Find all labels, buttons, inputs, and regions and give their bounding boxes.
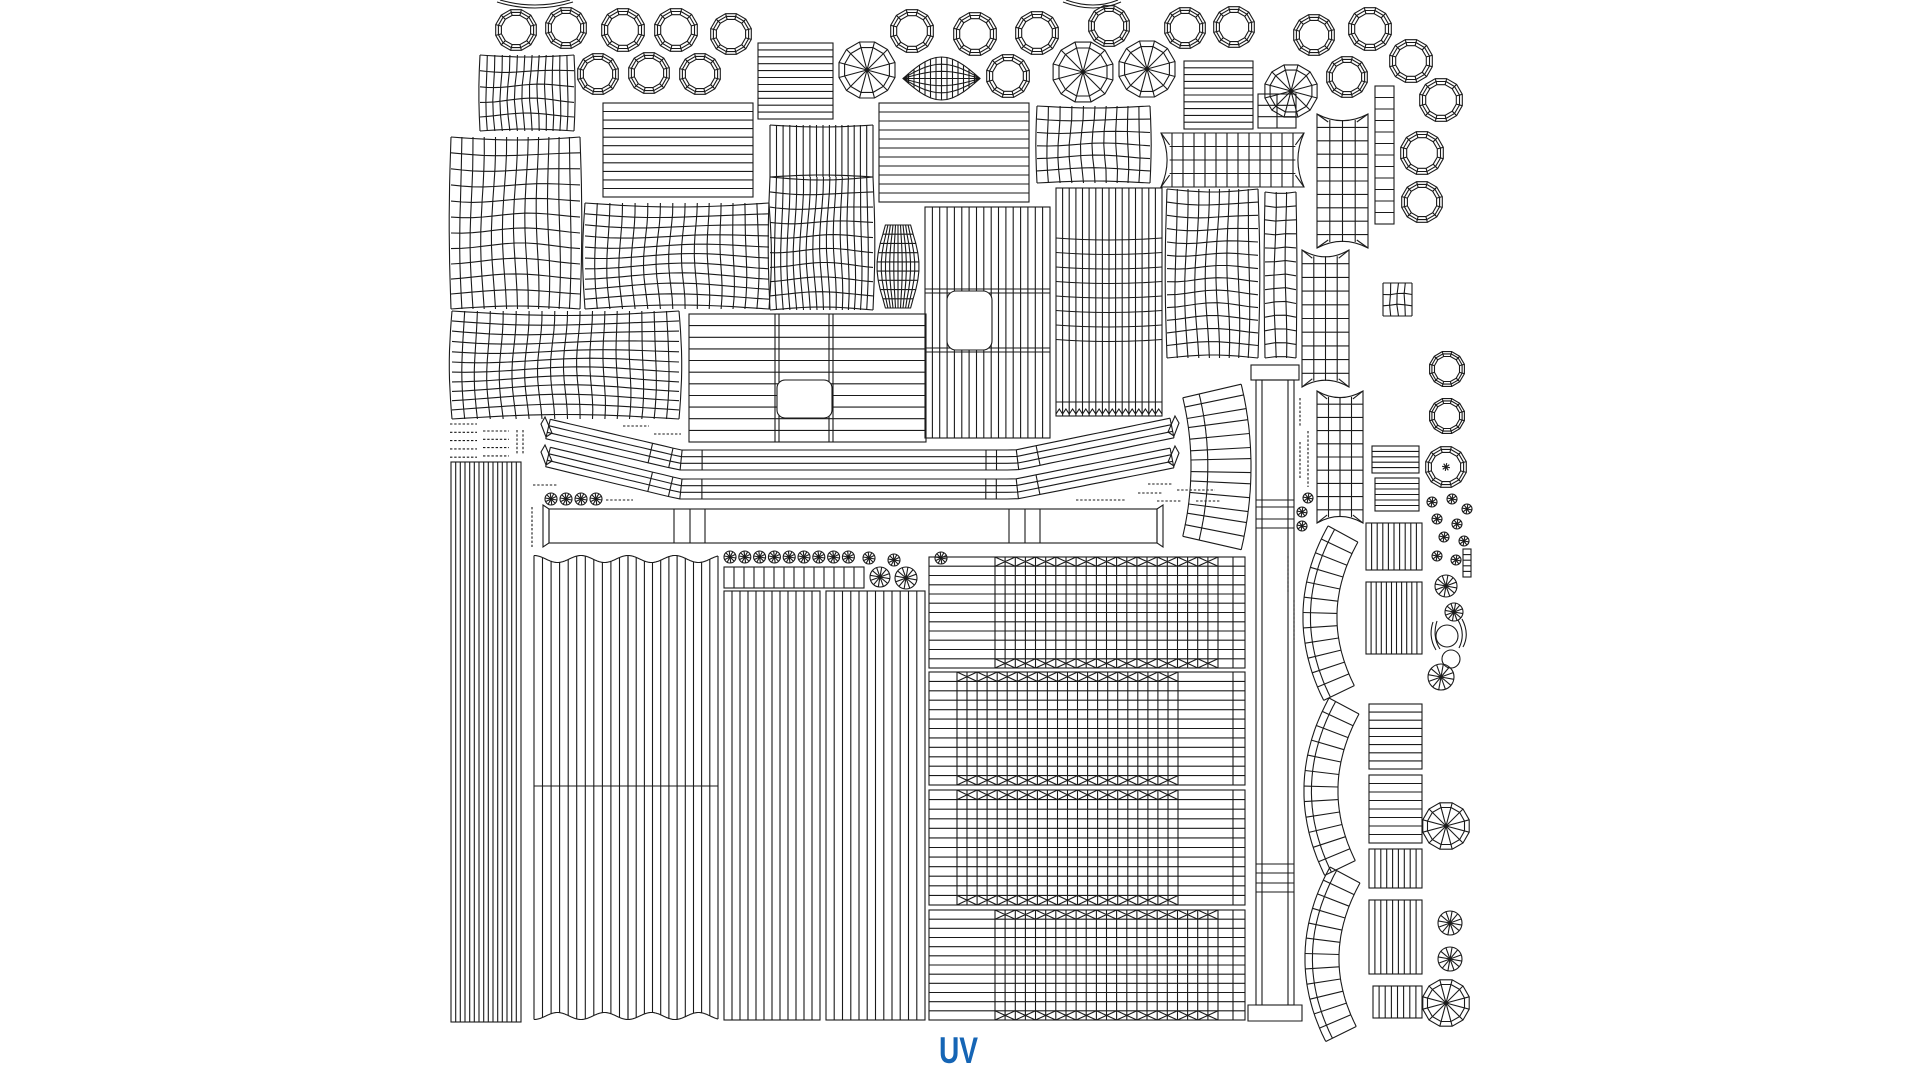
- svg-text:UV: UV: [939, 1029, 978, 1071]
